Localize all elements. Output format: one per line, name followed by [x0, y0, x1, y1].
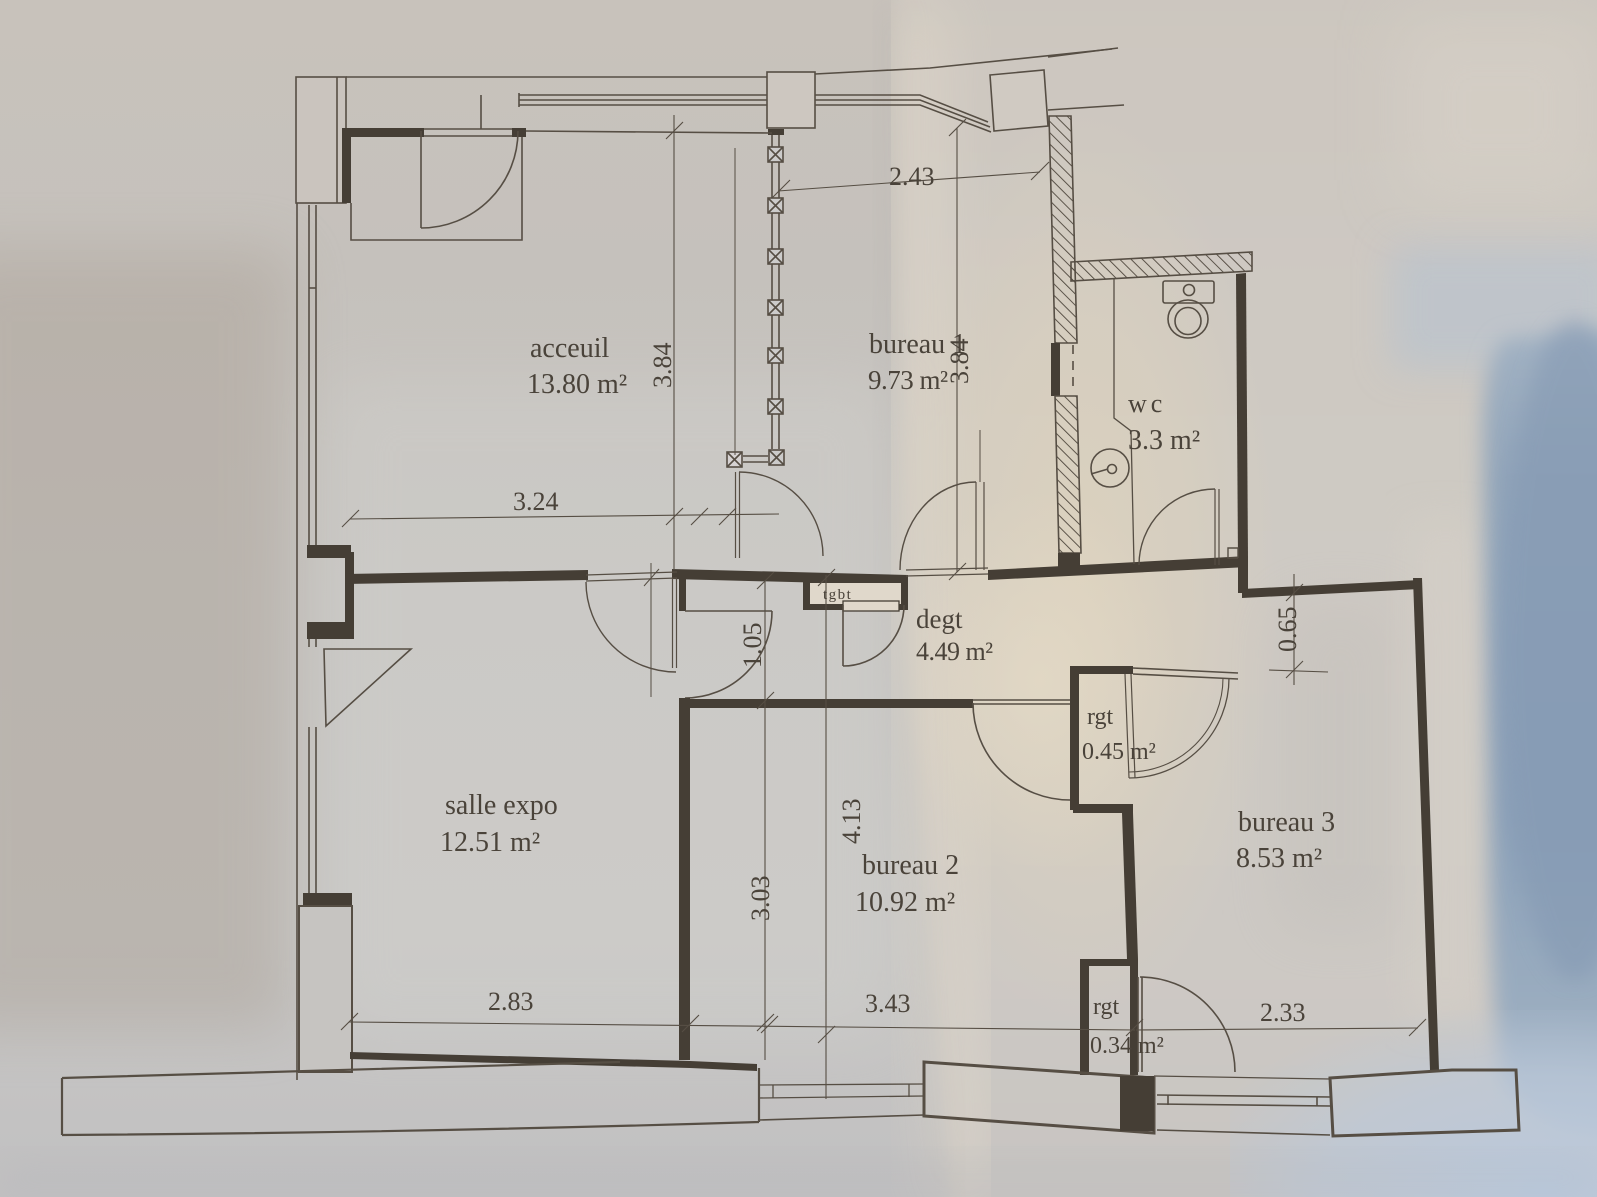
svg-text:3.3 m²: 3.3 m² [1128, 425, 1200, 456]
svg-text:acceuil: acceuil [530, 333, 609, 364]
svg-text:wc: wc [1128, 389, 1166, 418]
svg-text:3.24: 3.24 [513, 487, 559, 516]
svg-text:rgt: rgt [1087, 704, 1114, 730]
svg-text:3.43: 3.43 [865, 989, 911, 1018]
svg-text:degt: degt [916, 604, 963, 634]
svg-text:0.34 m²: 0.34 m² [1090, 1033, 1164, 1059]
svg-text:4.13: 4.13 [837, 799, 866, 845]
svg-text:13.80 m²: 13.80 m² [527, 369, 627, 400]
svg-text:12.51 m²: 12.51 m² [440, 827, 540, 858]
svg-text:3.84: 3.84 [945, 339, 974, 385]
svg-text:salle expo: salle expo [445, 790, 558, 821]
svg-text:0.45 m²: 0.45 m² [1082, 739, 1156, 765]
svg-text:8.53 m²: 8.53 m² [1236, 843, 1322, 874]
svg-text:2.33: 2.33 [1260, 998, 1306, 1027]
svg-text:2.83: 2.83 [488, 987, 534, 1016]
svg-text:1.05: 1.05 [738, 623, 767, 669]
svg-text:2.43: 2.43 [889, 162, 935, 191]
svg-text:tgbt: tgbt [823, 587, 852, 603]
svg-text:rgt: rgt [1093, 994, 1120, 1020]
svg-text:9.73 m²: 9.73 m² [868, 365, 948, 395]
svg-text:3.03: 3.03 [746, 876, 775, 922]
svg-text:0.65: 0.65 [1273, 607, 1302, 653]
svg-text:bureau 2: bureau 2 [862, 850, 959, 881]
svg-text:bureau 3: bureau 3 [1238, 807, 1335, 838]
svg-text:4.49 m²: 4.49 m² [916, 637, 993, 666]
svg-text:3.84: 3.84 [648, 343, 677, 389]
svg-text:10.92 m²: 10.92 m² [855, 887, 955, 918]
